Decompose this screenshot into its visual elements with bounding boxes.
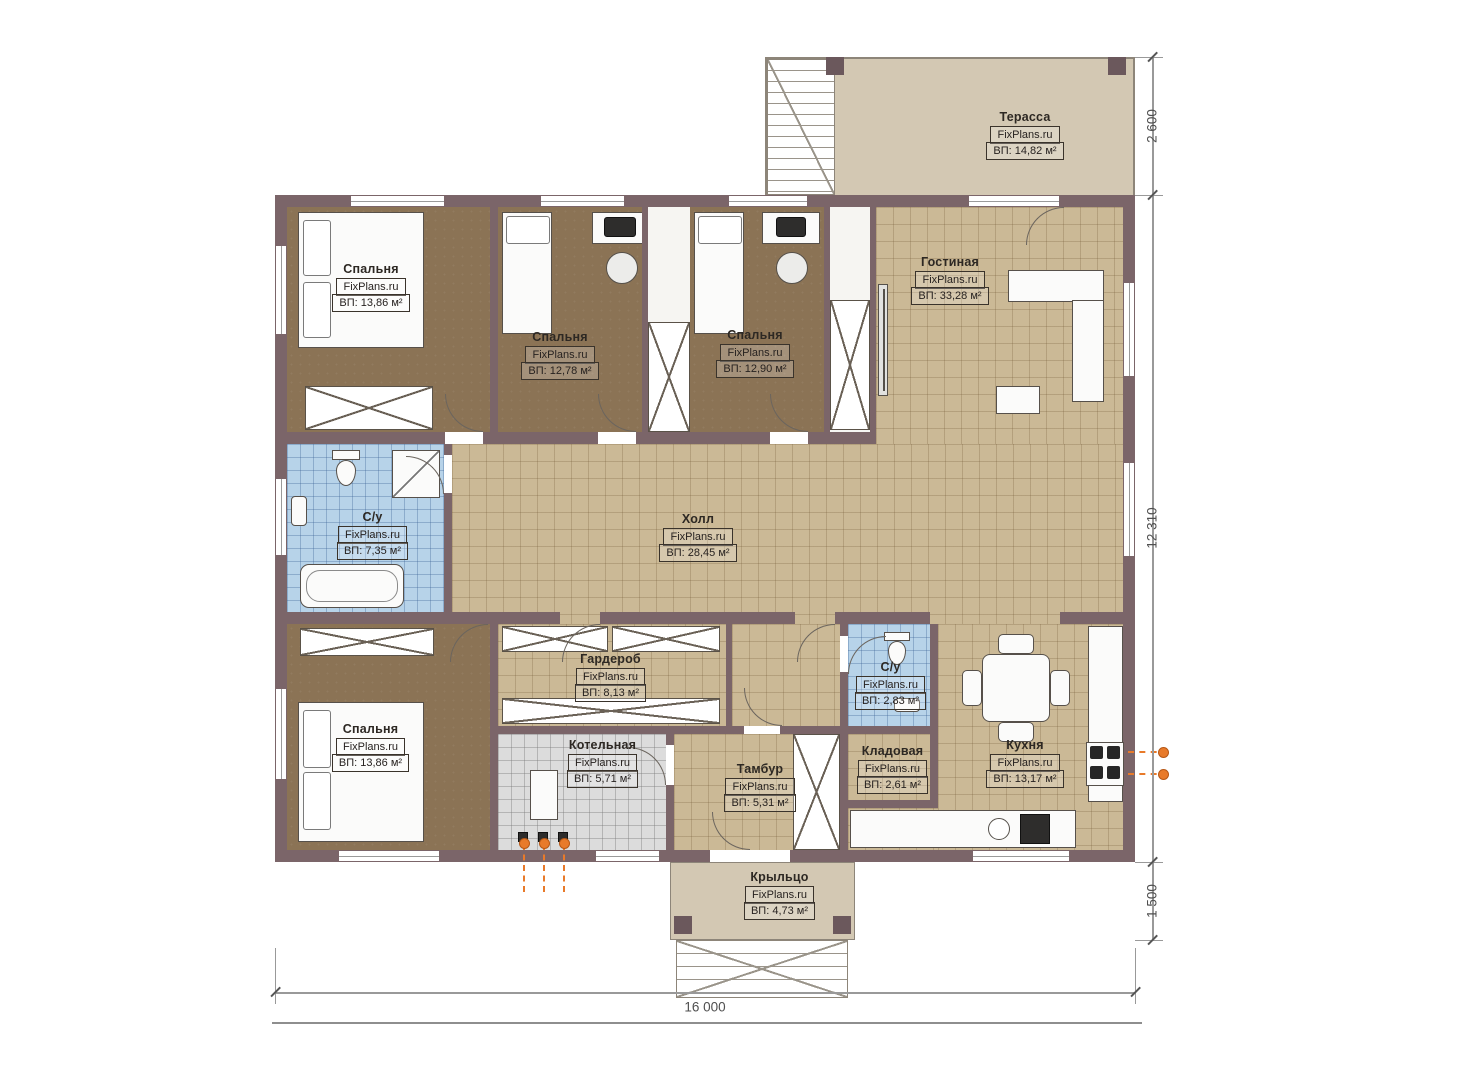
room-name: Холл: [682, 512, 714, 526]
wall: [488, 612, 560, 624]
dimension-line: [275, 992, 1135, 994]
wall: [483, 432, 598, 444]
room-name: Котельная: [569, 738, 636, 752]
room-area: ВП: 33,28 м²: [911, 287, 988, 305]
laptop-icon: [604, 217, 636, 237]
room-name: Крыльцо: [750, 870, 808, 884]
room-area: ВП: 7,35 м²: [337, 542, 408, 560]
dimension-porch-depth: 1 500: [1145, 884, 1160, 918]
room-label-bedroom-3: Спальня FixPlans.ru ВП: 12,90 м²: [690, 328, 820, 378]
window: [275, 688, 287, 780]
door-opening: [840, 636, 848, 672]
window: [595, 850, 660, 862]
room-label-bedroom-2: Спальня FixPlans.ru ВП: 12,78 м²: [495, 330, 625, 380]
wall: [490, 207, 498, 444]
dimension-house-depth: 12 310: [1145, 507, 1160, 548]
door-opening: [444, 455, 452, 493]
wall: [444, 612, 488, 624]
wardrobe-cabinet-icon: [305, 386, 433, 430]
window: [972, 850, 1070, 862]
room-area: ВП: 2,61 м²: [857, 776, 928, 794]
room-label-terrace: Терасса FixPlans.ru ВП: 14,82 м²: [960, 110, 1090, 160]
room-name: Гостиная: [921, 255, 979, 269]
wall: [835, 612, 930, 624]
window: [275, 478, 287, 556]
pillow-icon: [303, 772, 331, 830]
room-label-kitchen: Кухня FixPlans.ru ВП: 13,17 м²: [975, 738, 1075, 788]
porch-column-icon: [674, 916, 692, 934]
stove-burner-icon: [1090, 746, 1103, 759]
laptop-icon: [776, 217, 806, 237]
window: [338, 850, 440, 862]
window: [1123, 282, 1135, 377]
sofa-icon: [1008, 270, 1104, 302]
porch-steps-icon: [676, 940, 848, 998]
room-name: Спальня: [727, 328, 782, 342]
room-area: ВП: 13,86 м²: [332, 294, 409, 312]
utility-point-icon: [519, 838, 530, 849]
room-label-bedroom-4: Спальня FixPlans.ru ВП: 13,86 м²: [303, 722, 438, 772]
room-area: ВП: 14,82 м²: [986, 142, 1063, 160]
room-label-bedroom-1: Спальня FixPlans.ru ВП: 13,86 м²: [302, 262, 440, 312]
kitchen-sink-icon: [988, 818, 1010, 840]
dishwasher-icon: [1020, 814, 1050, 844]
chair-icon: [1050, 670, 1070, 706]
utility-point-icon: [539, 838, 550, 849]
utility-line: [523, 844, 525, 892]
sink-icon: [291, 496, 307, 526]
room-name: Кладовая: [862, 744, 923, 758]
wall: [490, 624, 498, 850]
terrace-column-icon: [1108, 57, 1126, 75]
window: [540, 195, 625, 207]
closet-icon: [648, 322, 690, 432]
chair-icon: [776, 252, 808, 284]
room-name: Спальня: [532, 330, 587, 344]
chair-icon: [606, 252, 638, 284]
wall: [726, 624, 732, 726]
wall: [824, 207, 830, 444]
room-area: ВП: 4,73 м²: [744, 902, 815, 920]
room-name: Кухня: [1006, 738, 1044, 752]
room-area: ВП: 8,13 м²: [575, 684, 646, 702]
window: [1123, 462, 1135, 557]
dimension-extension: [1135, 948, 1136, 1004]
room-label-living: Гостиная FixPlans.ru ВП: 33,28 м²: [885, 255, 1015, 305]
terrace-column-icon: [826, 57, 844, 75]
coffee-table-icon: [996, 386, 1040, 414]
room-area: ВП: 12,90 м²: [716, 360, 793, 378]
wall: [848, 800, 930, 808]
room-hall-floor: [452, 444, 1123, 624]
closet-icon: [830, 300, 870, 430]
wall: [636, 432, 770, 444]
window: [728, 195, 808, 207]
utility-point-icon: [1158, 747, 1169, 758]
room-name: С/у: [880, 660, 900, 674]
wall: [287, 432, 445, 444]
chair-icon: [998, 634, 1034, 654]
room-label-wardrobe: Гардероб FixPlans.ru ВП: 8,13 м²: [543, 652, 678, 702]
room-name: Гардероб: [580, 652, 641, 666]
room-name: Терасса: [1000, 110, 1051, 124]
room-area: ВП: 28,45 м²: [659, 544, 736, 562]
pillow-icon: [506, 216, 550, 244]
terrace-door: [968, 195, 1060, 207]
window: [275, 245, 287, 335]
room-name: С/у: [362, 510, 382, 524]
room-label-bathroom-2: С/у FixPlans.ru ВП: 2,83 м²: [848, 660, 933, 710]
utility-line: [563, 844, 565, 892]
room-area: ВП: 5,71 м²: [567, 770, 638, 788]
room-area: ВП: 13,17 м²: [986, 770, 1063, 788]
dimension-line: [1152, 57, 1154, 940]
wall: [600, 612, 795, 624]
dimension-extension: [275, 948, 276, 1004]
wardrobe-cabinet-icon: [300, 628, 434, 656]
toilet-icon: [884, 632, 910, 641]
room-area: ВП: 13,86 м²: [332, 754, 409, 772]
stove-burner-icon: [1107, 746, 1120, 759]
kitchen-table-icon: [982, 654, 1050, 722]
terrace-stairs-icon: [767, 59, 835, 195]
floor-plan: Спальня FixPlans.ru ВП: 13,86 м² Спальня…: [0, 0, 1473, 1080]
wall: [808, 432, 876, 444]
room-label-bathroom: С/у FixPlans.ru ВП: 7,35 м²: [310, 510, 435, 560]
room-name: Спальня: [343, 722, 398, 736]
chair-icon: [962, 670, 982, 706]
wall: [780, 726, 840, 734]
room-label-hall: Холл FixPlans.ru ВП: 28,45 м²: [633, 512, 763, 562]
wall: [848, 726, 930, 734]
wall: [1060, 612, 1123, 624]
stove-burner-icon: [1107, 766, 1120, 779]
room-area: ВП: 2,83 м²: [855, 692, 926, 710]
dimension-terrace-depth: 2 600: [1145, 109, 1160, 143]
door-opening: [710, 850, 790, 862]
room-area: ВП: 5,31 м²: [724, 794, 795, 812]
room-name: Спальня: [343, 262, 398, 276]
room-label-porch: Крыльцо FixPlans.ru ВП: 4,73 м²: [722, 870, 837, 920]
wall: [674, 726, 744, 734]
wardrobe-cabinet-icon: [612, 626, 720, 652]
bathtub-inner-icon: [306, 570, 398, 602]
utility-line: [543, 844, 545, 892]
window: [350, 195, 445, 207]
room-area: ВП: 12,78 м²: [521, 362, 598, 380]
room-label-boiler: Котельная FixPlans.ru ВП: 5,71 м²: [540, 738, 665, 788]
pillow-icon: [698, 216, 742, 244]
wall: [870, 207, 876, 444]
utility-point-icon: [559, 838, 570, 849]
door-opening: [666, 745, 674, 785]
stove-burner-icon: [1090, 766, 1103, 779]
room-name: Тамбур: [737, 762, 784, 776]
sofa-icon: [1072, 300, 1104, 402]
dimension-house-width: 16 000: [684, 1000, 725, 1015]
room-label-storage: Кладовая FixPlans.ru ВП: 2,61 м²: [845, 744, 940, 794]
room-label-vestibule: Тамбур FixPlans.ru ВП: 5,31 м²: [700, 762, 820, 812]
wall: [642, 207, 648, 444]
ground-line: [272, 1022, 1142, 1024]
utility-point-icon: [1158, 769, 1169, 780]
toilet-icon: [332, 450, 360, 460]
wall: [287, 612, 444, 624]
